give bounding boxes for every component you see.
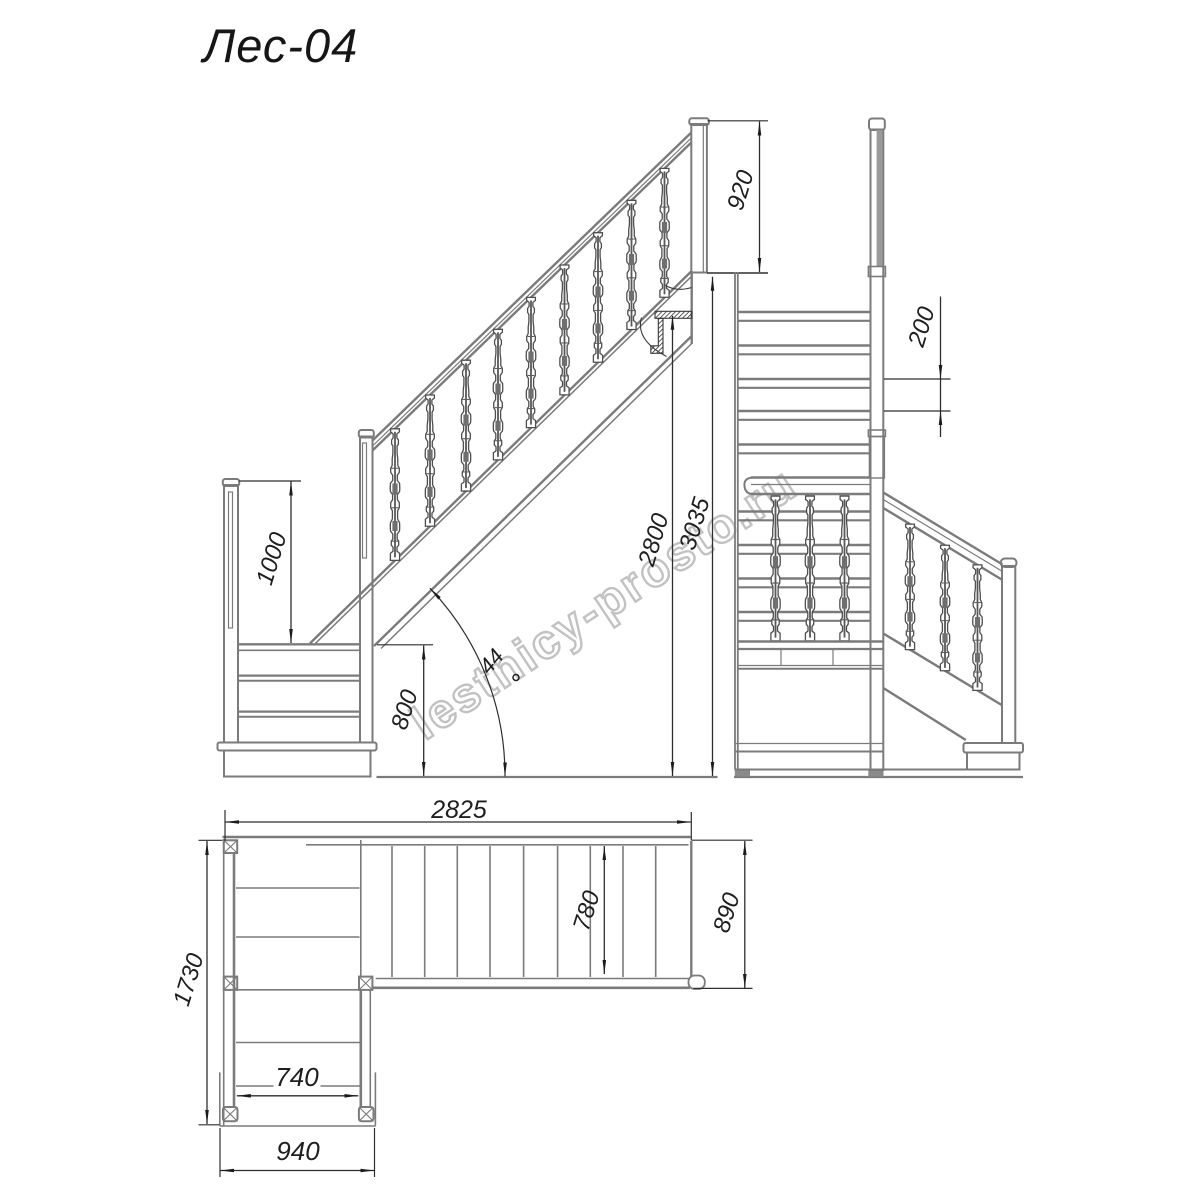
svg-text:2825: 2825 bbox=[430, 796, 487, 824]
svg-text:740: 740 bbox=[275, 1062, 319, 1092]
svg-text:Лес-04: Лес-04 bbox=[200, 19, 358, 72]
svg-text:940: 940 bbox=[276, 1136, 320, 1166]
